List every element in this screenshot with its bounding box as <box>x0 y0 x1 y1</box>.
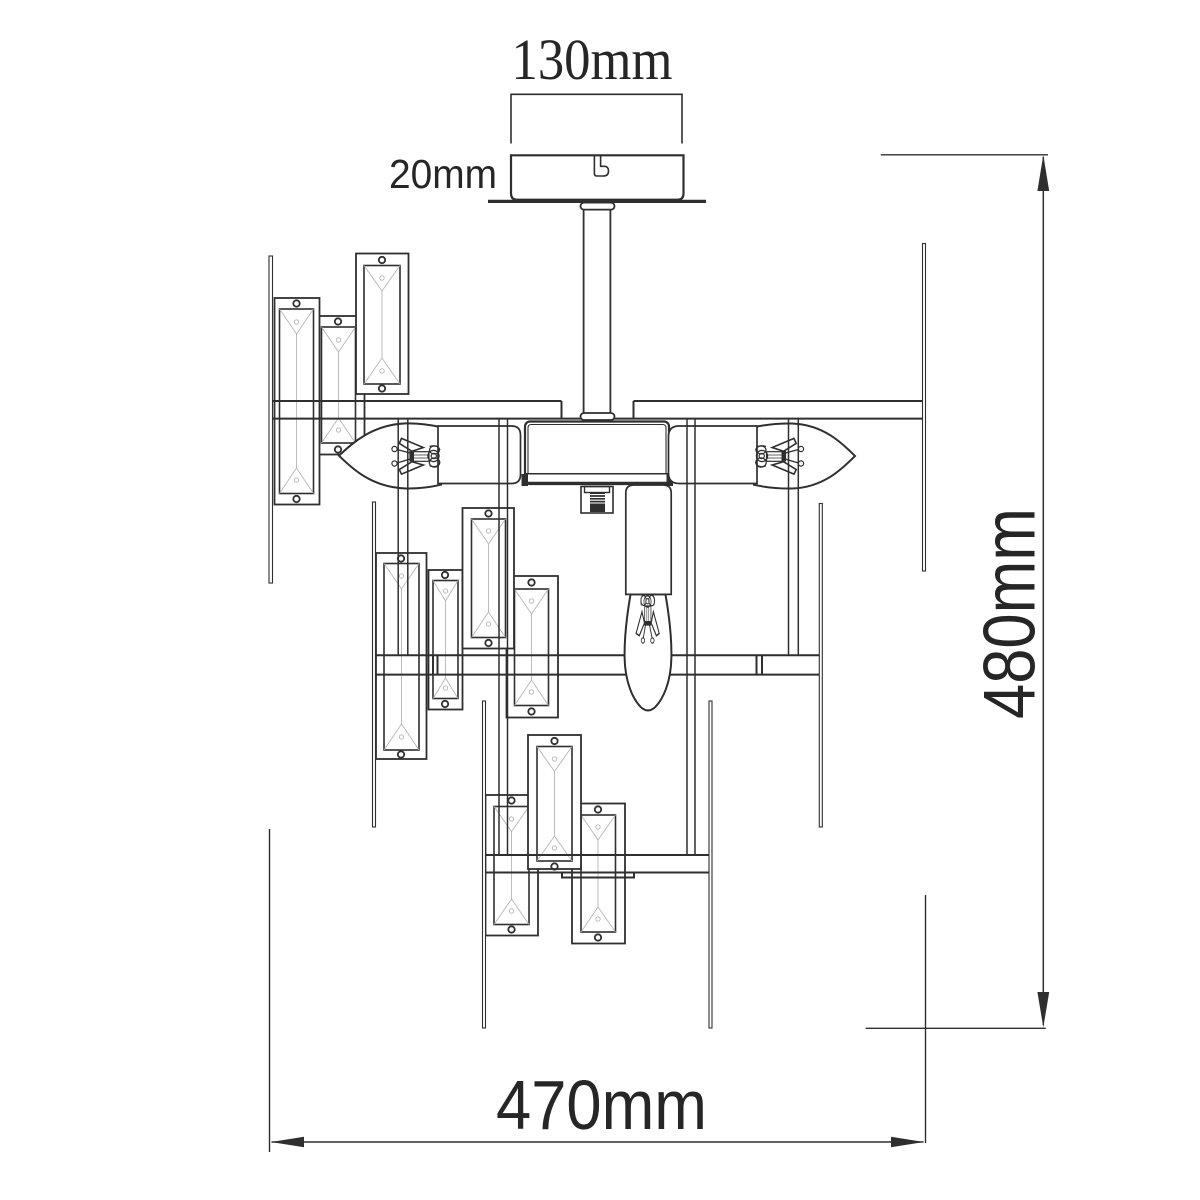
svg-text:20mm: 20mm <box>389 151 497 197</box>
svg-text:130mm: 130mm <box>512 27 673 92</box>
svg-text:480mm: 480mm <box>970 508 1051 719</box>
svg-text:470mm: 470mm <box>496 1066 707 1144</box>
